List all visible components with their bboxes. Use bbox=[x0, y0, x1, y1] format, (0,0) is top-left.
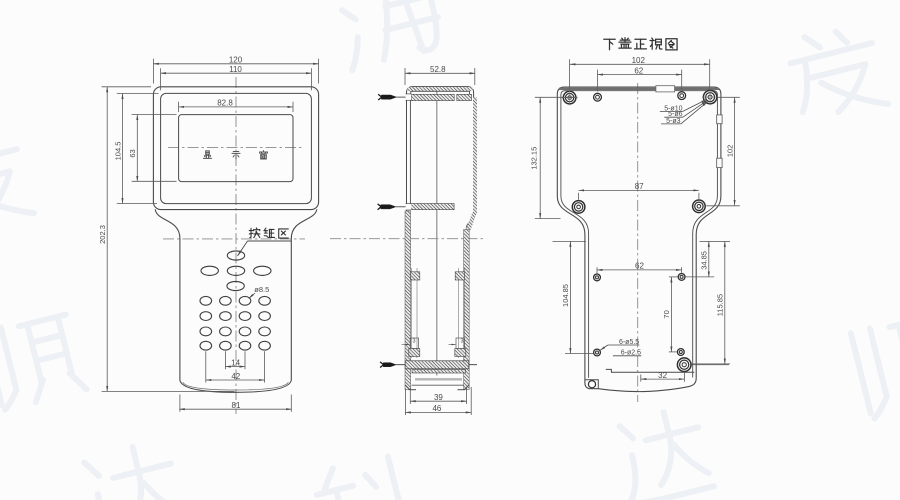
svg-text:202.3: 202.3 bbox=[98, 225, 107, 244]
svg-text:34.85: 34.85 bbox=[700, 251, 709, 270]
svg-text:104.5: 104.5 bbox=[114, 142, 123, 161]
svg-text:87: 87 bbox=[635, 182, 644, 191]
svg-text:102: 102 bbox=[632, 56, 646, 65]
svg-text:120: 120 bbox=[229, 56, 243, 65]
svg-text:63: 63 bbox=[128, 149, 137, 157]
svg-text:14: 14 bbox=[231, 358, 240, 367]
svg-text:32: 32 bbox=[658, 371, 667, 380]
svg-text:ø8.5: ø8.5 bbox=[254, 285, 269, 294]
svg-text:81: 81 bbox=[232, 401, 241, 410]
svg-text:110: 110 bbox=[229, 65, 242, 74]
svg-text:52.8: 52.8 bbox=[430, 65, 446, 74]
svg-text:3: 3 bbox=[413, 339, 416, 345]
svg-text:132.15: 132.15 bbox=[530, 147, 539, 170]
svg-text:104.85: 104.85 bbox=[561, 284, 570, 307]
svg-text:62: 62 bbox=[635, 262, 644, 271]
svg-text:102: 102 bbox=[725, 145, 734, 158]
svg-text:39: 39 bbox=[434, 393, 443, 402]
svg-text:46: 46 bbox=[432, 404, 441, 413]
svg-text:42: 42 bbox=[231, 372, 240, 381]
svg-text:3: 3 bbox=[461, 339, 464, 345]
svg-text:82.8: 82.8 bbox=[217, 99, 233, 108]
svg-text:70: 70 bbox=[662, 310, 671, 318]
svg-text:115.85: 115.85 bbox=[715, 294, 724, 316]
svg-text:62: 62 bbox=[634, 66, 643, 75]
